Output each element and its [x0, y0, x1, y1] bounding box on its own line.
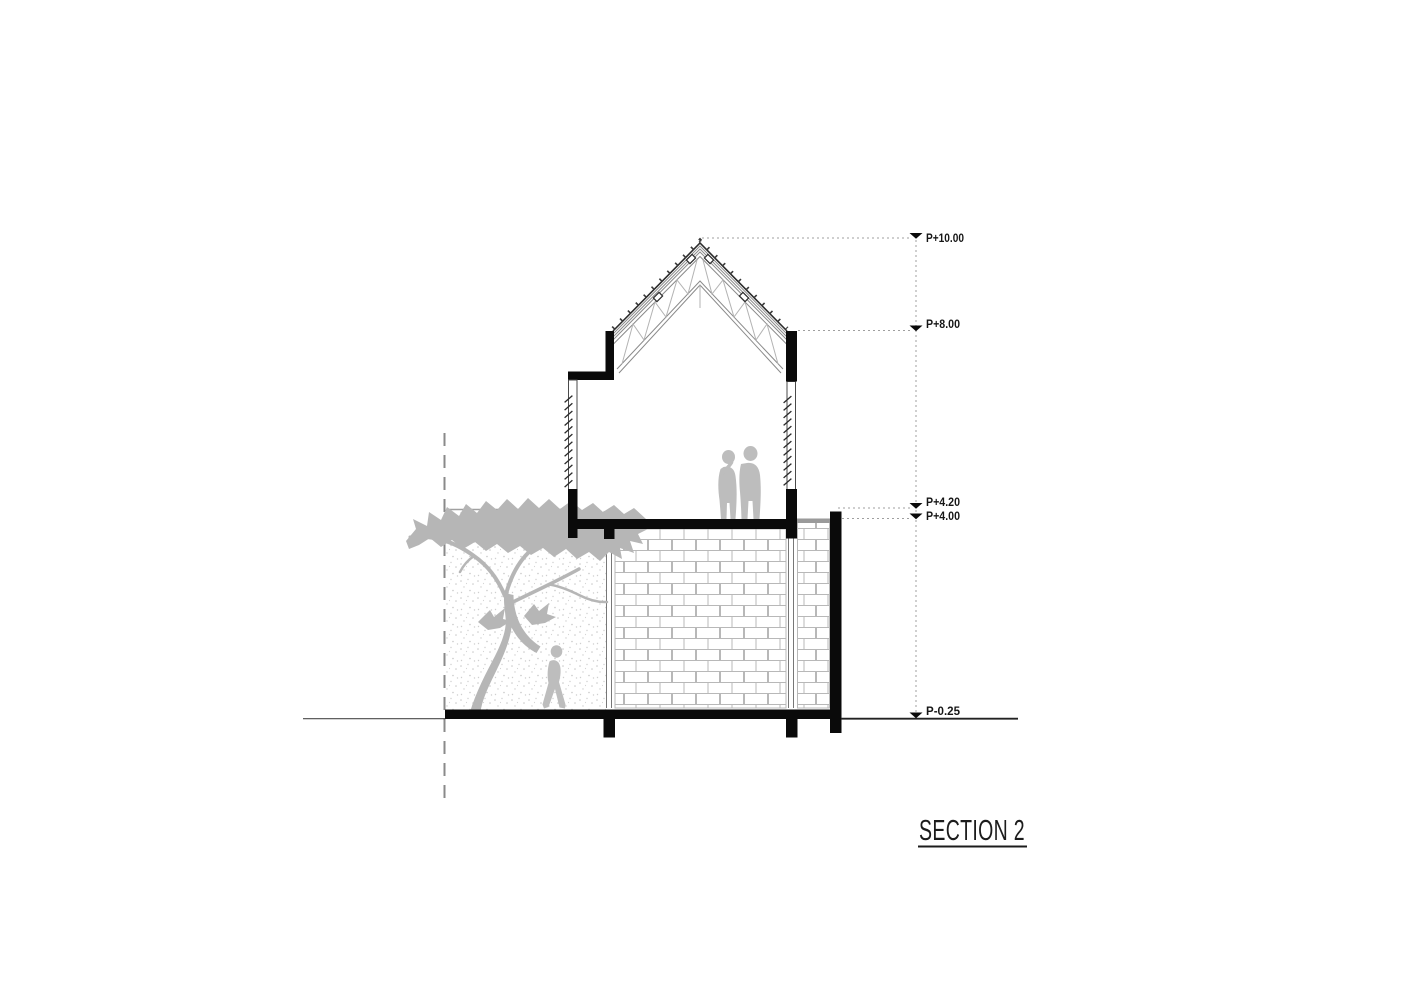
- elevation-label: P+4.20: [926, 495, 960, 509]
- elevation-marker-icon: [910, 233, 923, 239]
- person-head: [551, 645, 563, 657]
- gable-roof-truss: [613, 241, 787, 374]
- brick-wall-elevation: [615, 529, 786, 708]
- right-wall-upper: [786, 331, 797, 382]
- left-eave-cap: [568, 372, 614, 381]
- elevation-marker-icon: [910, 503, 923, 509]
- ground-slab: [445, 710, 841, 720]
- left-wall-lower: [568, 489, 578, 538]
- brick-wall-right: [798, 522, 830, 708]
- right-wall-lower: [786, 489, 797, 539]
- section-title: SECTION 2: [919, 815, 1025, 847]
- upper-floor-slab: [570, 519, 797, 529]
- right-boundary-wall: [830, 512, 842, 734]
- elevation-label: P+8.00: [926, 317, 960, 331]
- footing-stub-right: [786, 719, 798, 738]
- lower-floor-room: [607, 519, 831, 709]
- elevation-markers: P+10.00 P+8.00 P+4.20 P+4.00 P-0.25: [910, 231, 965, 718]
- elevation-marker-icon: [910, 326, 923, 332]
- section-drawing: P+10.00 P+8.00 P+4.20 P+4.00 P-0.25 SECT…: [0, 0, 1414, 1000]
- elevation-marker-icon: [910, 514, 923, 520]
- roof-vent-box: [653, 292, 662, 301]
- elevation-label: P+4.00: [926, 509, 960, 523]
- elevation-marker-icon: [910, 713, 923, 719]
- title-block: SECTION 2: [918, 815, 1027, 847]
- drawing-sheet: P+10.00 P+8.00 P+4.20 P+4.00 P-0.25 SECT…: [0, 0, 1414, 1000]
- slab-beam-stub: [604, 528, 615, 539]
- left-eave-parapet: [606, 331, 615, 374]
- footing-stub-left: [604, 719, 616, 738]
- person-body: [739, 463, 760, 519]
- people-upper-floor: [718, 446, 760, 519]
- elevation-label: P-0.25: [926, 704, 960, 718]
- person-head: [744, 446, 758, 461]
- person-body: [718, 467, 736, 519]
- roof-truss-web: [622, 260, 697, 364]
- roof-truss-web: [703, 260, 778, 364]
- terrace-floor: [797, 519, 830, 524]
- elevation-label: P+10.00: [926, 231, 964, 245]
